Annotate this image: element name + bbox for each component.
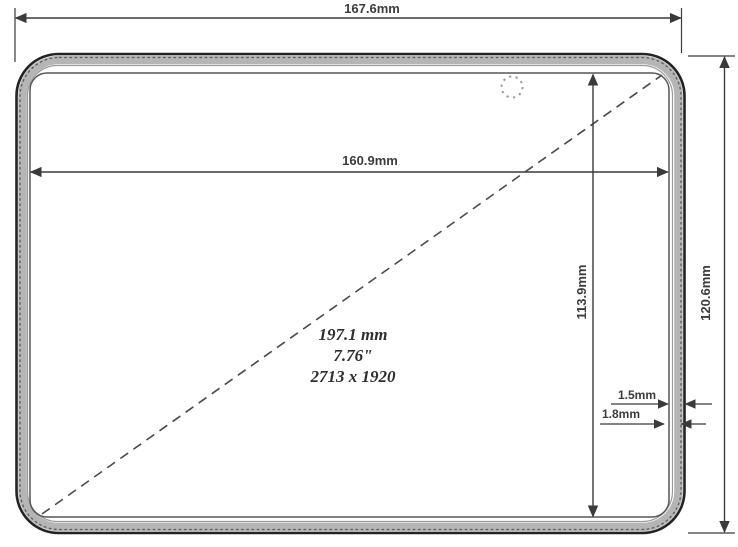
display-resolution-label: 2713 x 1920 [310, 367, 397, 386]
outer-height-dimension: 120.6mm [688, 56, 735, 533]
diagonal-length-inch-label: 7.76" [333, 346, 372, 365]
display-height-label: 113.9mm [574, 265, 589, 320]
bezel-outer-label: 1.5mm [618, 388, 656, 402]
drawing-svg: 197.1 mm 7.76" 2713 x 1920 167.6mm 160.9… [0, 0, 738, 547]
display-width-label: 160.9mm [342, 153, 398, 168]
tablet-dimension-drawing: 197.1 mm 7.76" 2713 x 1920 167.6mm 160.9… [0, 0, 738, 547]
diagonal-length-mm-label: 197.1 mm [319, 325, 388, 344]
outer-height-label: 120.6mm [698, 265, 713, 321]
outer-width-label: 167.6mm [344, 1, 400, 16]
bezel-inner-label: 1.8mm [602, 407, 640, 421]
